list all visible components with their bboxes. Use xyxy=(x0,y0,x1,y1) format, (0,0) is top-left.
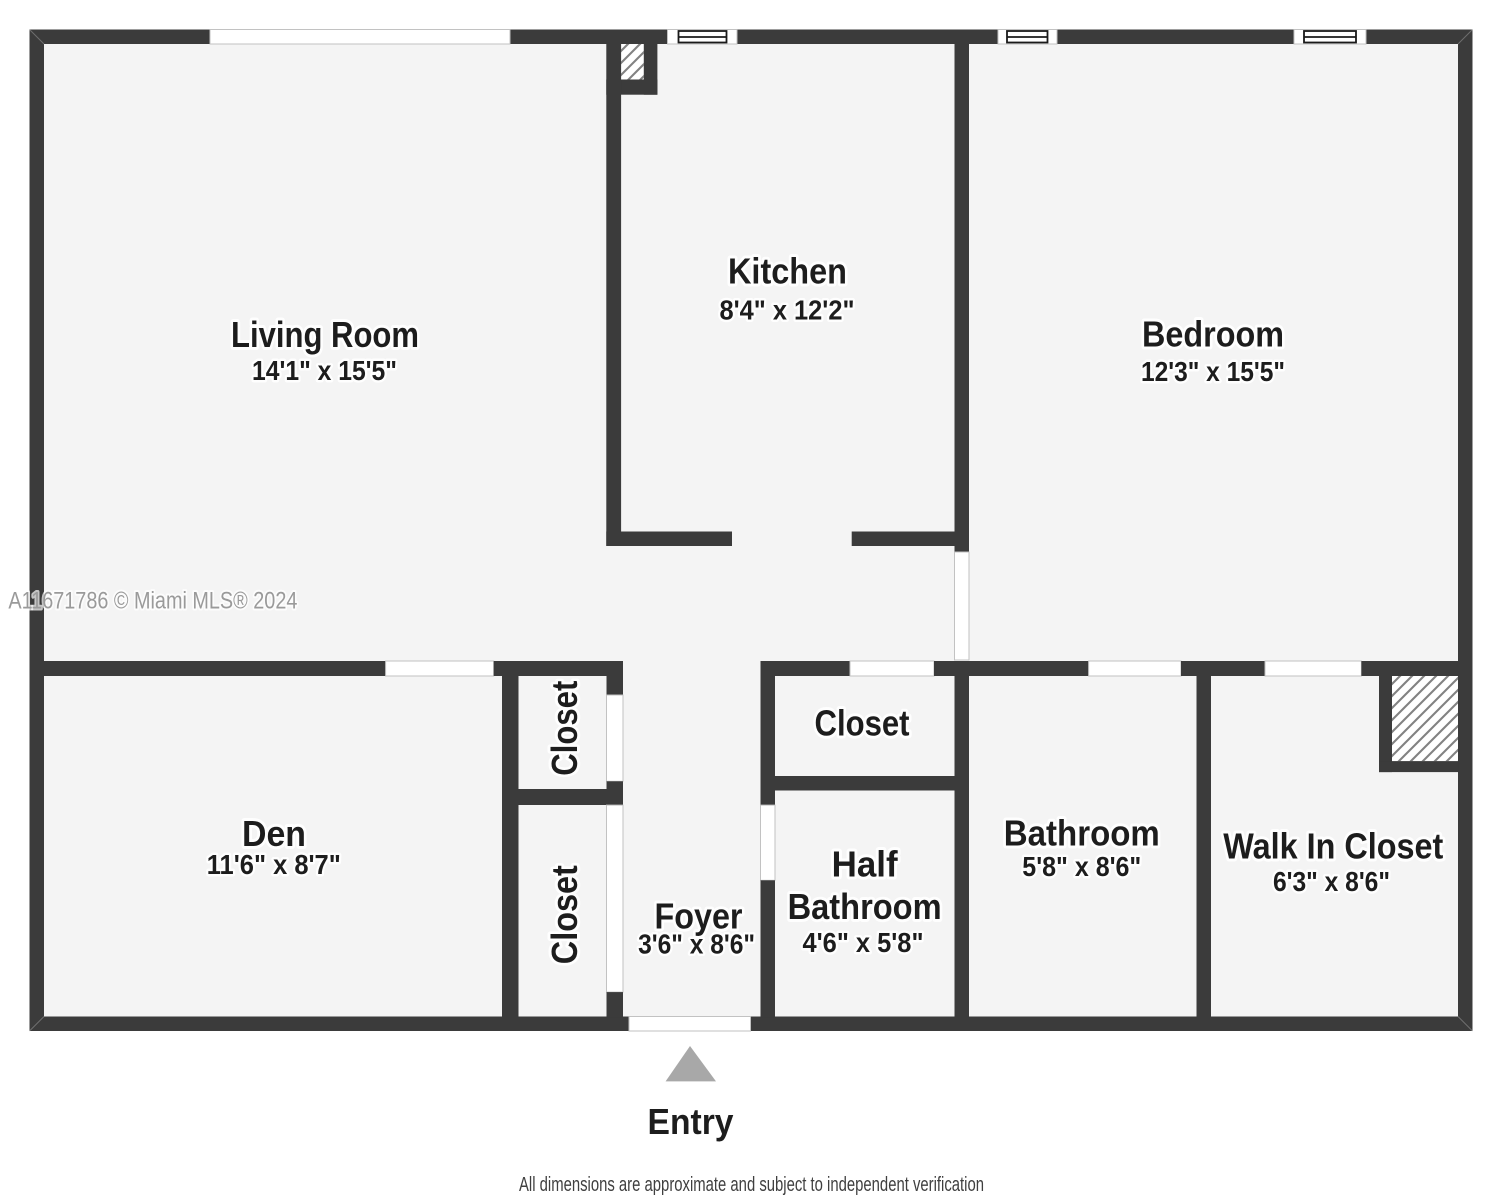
svg-text:Walk In Closet: Walk In Closet xyxy=(1223,825,1443,866)
svg-text:4'6" x 5'8": 4'6" x 5'8" xyxy=(803,927,924,958)
svg-text:All dimensions are approximate: All dimensions are approximate and subje… xyxy=(519,1173,984,1196)
svg-text:3'6" x 8'6": 3'6" x 8'6" xyxy=(638,929,755,960)
svg-text:Closet: Closet xyxy=(544,681,585,776)
svg-text:Bathroom: Bathroom xyxy=(1004,813,1160,854)
svg-text:11'6" x 8'7": 11'6" x 8'7" xyxy=(207,849,341,880)
svg-text:Kitchen: Kitchen xyxy=(728,251,847,292)
svg-text:5'8" x 8'6": 5'8" x 8'6" xyxy=(1022,851,1141,882)
svg-text:Entry: Entry xyxy=(648,1101,734,1142)
svg-text:12'3" x 15'5": 12'3" x 15'5" xyxy=(1141,356,1285,387)
svg-text:Den: Den xyxy=(242,813,306,854)
svg-text:A11671786 © Miami MLS® 2024: A11671786 © Miami MLS® 2024 xyxy=(8,588,297,615)
svg-text:6'3" x 8'6": 6'3" x 8'6" xyxy=(1273,866,1390,897)
svg-text:Bedroom: Bedroom xyxy=(1142,314,1284,355)
svg-text:Closet: Closet xyxy=(544,865,585,964)
svg-text:8'4" x 12'2": 8'4" x 12'2" xyxy=(720,294,855,325)
svg-text:14'1" x 15'5": 14'1" x 15'5" xyxy=(252,355,397,386)
svg-text:Living Room: Living Room xyxy=(231,314,419,355)
svg-text:Closet: Closet xyxy=(815,703,910,744)
svg-text:Bathroom: Bathroom xyxy=(788,886,942,927)
svg-text:Half: Half xyxy=(832,844,899,885)
